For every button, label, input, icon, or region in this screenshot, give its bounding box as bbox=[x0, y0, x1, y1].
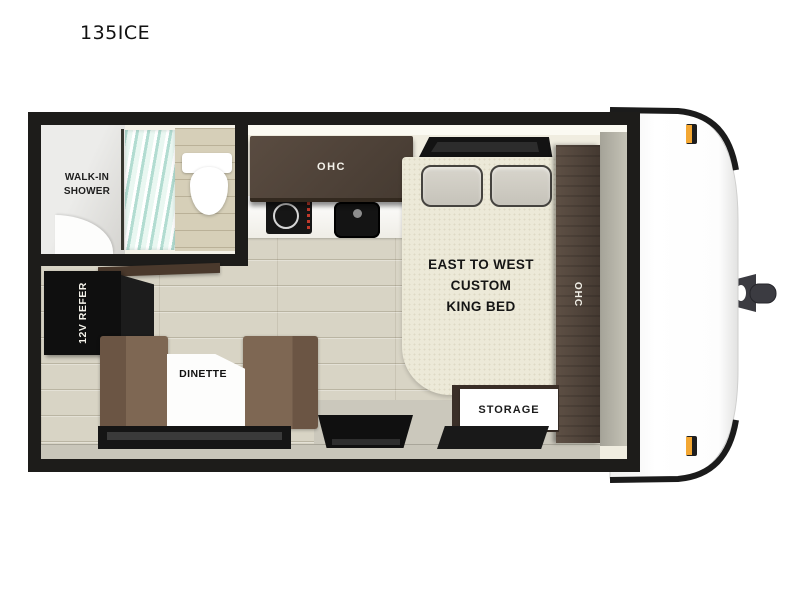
kitchen-sink bbox=[334, 202, 380, 238]
ohc-kitchen-label: OHC bbox=[317, 161, 346, 173]
marker-light-bottom-icon bbox=[686, 436, 697, 456]
cooktop-knobs bbox=[307, 202, 310, 230]
entry-door-threshold bbox=[332, 439, 400, 445]
refrigerator-label: 12V REFER bbox=[77, 282, 89, 344]
pillow bbox=[421, 165, 483, 207]
shower-door-rod bbox=[121, 129, 124, 250]
cooktop bbox=[266, 198, 312, 234]
dinette-window bbox=[98, 426, 291, 449]
pillow bbox=[490, 165, 552, 207]
front-wall-face bbox=[600, 132, 627, 446]
shower-glass-door bbox=[125, 130, 175, 250]
dinette-window-glass bbox=[107, 432, 282, 440]
ohc-bed-label: OHC bbox=[572, 281, 583, 306]
burner-icon bbox=[273, 203, 299, 229]
floorplan-outline: WALK-IN SHOWER OHC EAST TO WEST C bbox=[28, 112, 640, 472]
bathroom: WALK-IN SHOWER bbox=[41, 125, 248, 266]
dinette-seat-left bbox=[100, 336, 168, 429]
marker-light-top-icon bbox=[686, 124, 697, 144]
storage-front: STORAGE bbox=[460, 389, 558, 430]
floorplan-page: 135ICE bbox=[0, 0, 800, 600]
dinette-seat-right bbox=[243, 336, 318, 429]
overhead-cabinet-kitchen: OHC bbox=[250, 136, 413, 202]
page-title: 135ICE bbox=[80, 22, 150, 44]
entry-door bbox=[318, 415, 413, 448]
king-bed-label: EAST TO WEST CUSTOM KING BED bbox=[402, 255, 560, 318]
hitch-coupler-icon bbox=[733, 274, 776, 312]
bedroom-window-glass bbox=[431, 142, 539, 152]
dinette-label: DINETTE bbox=[167, 368, 239, 380]
overhead-cabinet-bed: OHC bbox=[556, 145, 600, 443]
sink-drain-icon bbox=[353, 209, 362, 218]
bathroom-interior: WALK-IN SHOWER bbox=[41, 125, 235, 254]
storage-label: STORAGE bbox=[478, 404, 539, 416]
entry-step-mat bbox=[437, 426, 549, 449]
walk-in-shower-label: WALK-IN SHOWER bbox=[43, 171, 131, 198]
